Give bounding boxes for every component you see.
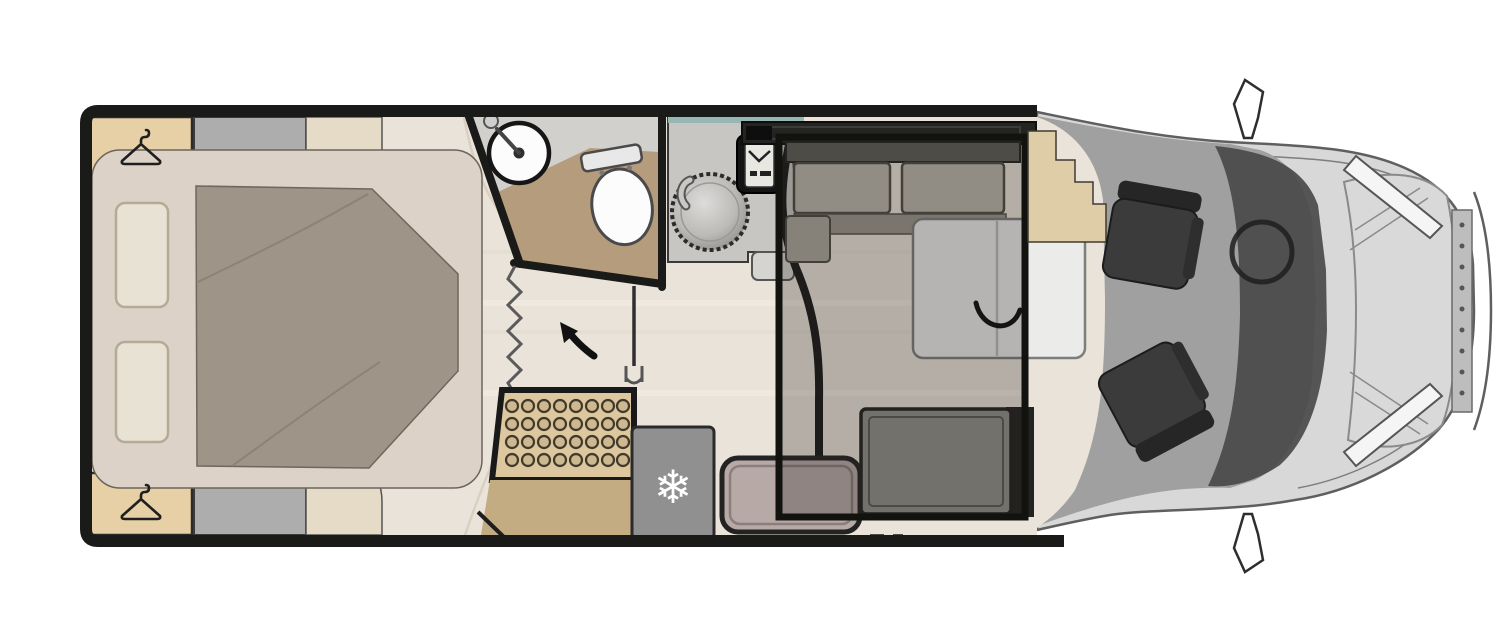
drop-down-bed-outline bbox=[779, 137, 1025, 517]
pillow-bottom bbox=[116, 342, 168, 442]
hob-panel bbox=[745, 143, 774, 187]
mirror-bottom bbox=[1234, 514, 1263, 572]
bumper-edge bbox=[1474, 192, 1491, 430]
fridge: ❄ bbox=[632, 427, 714, 539]
shower-room bbox=[478, 390, 634, 541]
snowflake-icon: ❄ bbox=[654, 460, 693, 514]
motorhome-floorplan: ❄ bbox=[0, 0, 1500, 619]
floorplan-svg: ❄ bbox=[0, 0, 1500, 619]
hob-control bbox=[750, 171, 757, 176]
hob-control bbox=[760, 171, 771, 176]
rear-bedroom bbox=[90, 117, 482, 535]
mirror-top bbox=[1234, 80, 1263, 138]
overhead-locker-notch bbox=[746, 126, 772, 140]
pillow-top bbox=[116, 203, 168, 307]
shower-lower-cabinet bbox=[480, 480, 634, 541]
